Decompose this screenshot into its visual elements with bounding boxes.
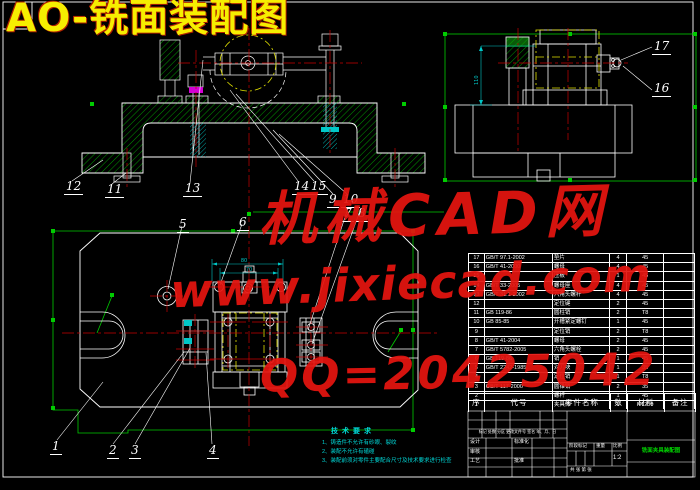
dim-label-b: 70 [246, 267, 252, 273]
drawing-linework: 110 [0, 0, 700, 490]
tb-process: 工艺 [470, 459, 480, 465]
parts-row-14[interactable]: 14GB/T 33-2005螺母座445 [468, 281, 695, 290]
clamp-block-top [215, 312, 285, 372]
tb-standard: 标准化 [514, 440, 529, 446]
tech-req-title: 技术要求 [331, 426, 375, 436]
parts-row-11[interactable]: 11GB 119-86圆柱销2T8 [468, 308, 695, 317]
parts-row-6[interactable]: 6GB 119-86销145 [468, 354, 695, 363]
tech-req-item: 1、铸造件不允许有砂眼、裂纹 [322, 439, 452, 448]
tech-req-item: 3、装配前须对零件主要配合尺寸及技术要求进行检查 [322, 457, 452, 466]
parts-row-16[interactable]: 16GB/T 41-2000螺母445 [468, 262, 695, 271]
parts-row-4[interactable]: 4定位销1T8 [468, 372, 695, 381]
tb-scale-value: 1:2 [613, 455, 621, 462]
tb-sheet: 共 张 第 张 [570, 468, 592, 473]
parts-row-13[interactable]: 13GB/T 31.1-2002六角头螺杆445 [468, 290, 695, 299]
tb-drawing-name: 铣面夹具装配图 [628, 446, 694, 454]
support-block [160, 40, 180, 80]
tech-req-items: 1、铸造件不允许有砂眼、裂纹2、装配不允许有磕碰3、装配前须对零件主要配合尺寸及… [322, 439, 452, 466]
parts-row-15[interactable]: 15压板145 [468, 271, 695, 280]
tb-approve: 批准 [514, 459, 524, 465]
callout-1[interactable]: 1 [50, 440, 62, 455]
parts-row-3[interactable]: 3GB/T 117-2000圆锥销235 [468, 382, 695, 391]
callout-4[interactable]: 4 [207, 444, 219, 459]
tb-weight-label: 重量 [596, 444, 605, 449]
callout-13[interactable]: 13 [183, 182, 202, 197]
callout-15[interactable]: 15 [309, 180, 328, 195]
parts-row-9[interactable]: 9定位销2T8 [468, 327, 695, 336]
page-title: AO-铣面装配图 [6, 0, 289, 42]
selection-box-top [53, 231, 413, 433]
parts-row-12[interactable]: 12定位键245 [468, 299, 695, 308]
dim-label-a: 80 [241, 258, 247, 264]
base-side [455, 105, 632, 153]
parts-row-8[interactable]: 8GB/T 41-2004螺母245 [468, 336, 695, 345]
callout-9[interactable]: 9 [327, 193, 339, 208]
callout-17[interactable]: 17 [652, 40, 671, 55]
selection-box-side [445, 34, 696, 181]
parts-row-10[interactable]: 10GB 85-85开槽紧定螺钉145 [468, 317, 695, 326]
front-view[interactable] [82, 28, 425, 222]
cad-canvas: 110 [0, 0, 700, 490]
callout-16[interactable]: 16 [652, 82, 671, 97]
top-view[interactable]: 80 70 [51, 226, 440, 446]
tb-scale-label: 比例 [613, 444, 622, 449]
callout-3[interactable]: 3 [129, 444, 141, 459]
parts-row-17[interactable]: 17GB/T 97.1-2002垫片445 [468, 253, 695, 262]
callout-11[interactable]: 11 [105, 183, 124, 198]
parts-row-2[interactable]: 2螺杆145 [468, 391, 695, 400]
parts-row-5[interactable]: 5GB/T 2242-1985对刀块135 [468, 363, 695, 372]
callout-5[interactable]: 5 [177, 218, 189, 233]
parts-row-7[interactable]: 7GB/T 5782-2005六角头螺栓245 [468, 345, 695, 354]
parts-row-1[interactable]: 1夹具体1HT200 [468, 400, 695, 409]
callout-6[interactable]: 6 [237, 216, 249, 231]
callout-2[interactable]: 2 [107, 444, 119, 459]
callout-8[interactable]: 8 [356, 207, 368, 222]
parts-table[interactable]: 17GB/T 97.1-2002垫片44516GB/T 41-2000螺母445… [468, 253, 695, 409]
tech-req-item: 2、装配不允许有磕碰 [322, 448, 452, 457]
tb-design: 设计 [470, 440, 480, 446]
phantom-rect-side [536, 30, 599, 88]
dim-label-side: 110 [474, 75, 480, 85]
callout-7[interactable]: 7 [342, 207, 354, 222]
tb-check: 审核 [470, 450, 480, 456]
centerlines-top [62, 226, 440, 446]
clamp-tower [533, 44, 601, 105]
callout-12[interactable]: 12 [64, 180, 83, 195]
tb-stage-label: 阶段标记 [569, 444, 587, 449]
clamp-bar-top [213, 282, 287, 312]
tb-mark-row: 标记 处数 分区 更改文件号 签名 年、月、日 [469, 430, 566, 434]
